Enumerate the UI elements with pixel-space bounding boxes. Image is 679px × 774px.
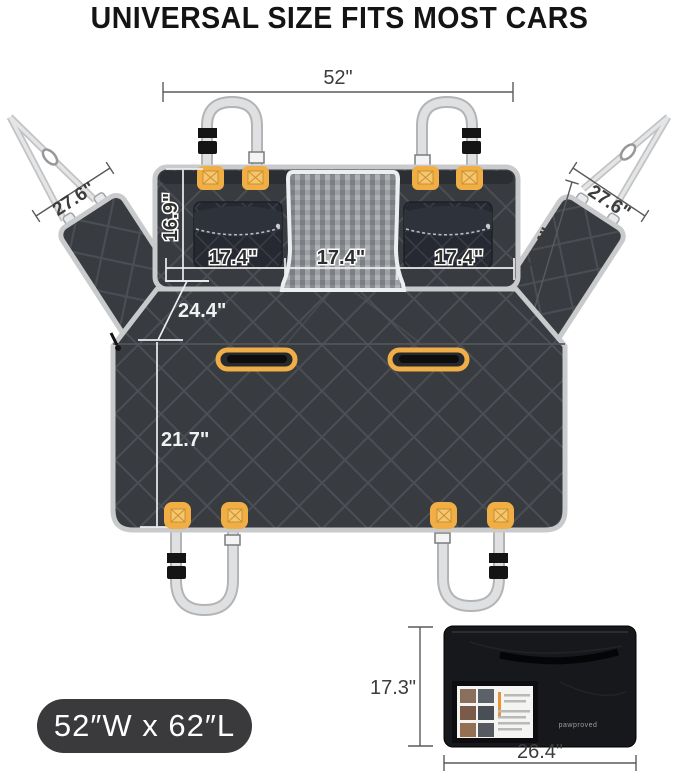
product-dimension-diagram: UNIVERSAL SIZE FITS MOST CARS 52" [0,0,679,774]
size-badge: 52″W x 62″L [37,699,252,753]
zipper-pull-icon [276,224,280,228]
strap-adjuster-icon [415,155,430,166]
dim-top-width: 52" [163,67,513,102]
packed-bag: pawproved [444,626,636,747]
bag-brand-logo: pawproved [559,722,598,729]
buckle-icon [167,553,186,563]
headrest-strap-left [198,102,264,172]
dim-pocket-left-label: 17.4" [209,247,257,269]
strap-adjuster-icon [249,152,264,163]
strap-adjuster-icon [225,535,240,545]
dim-mesh-label: 17.4" [317,247,365,269]
bottom-strap-right [435,522,508,606]
headrest-strap-right [415,102,481,172]
dim-bag-width-label: 26.4" [517,741,563,763]
dim-bench-upper-depth-label: 24.4" [178,300,226,322]
dim-bench-depth-label: 21.7" [161,429,209,451]
bench-body [111,289,565,530]
dim-backrest-height-label: 16.9" [160,193,182,241]
zipper-pull-icon [486,224,490,228]
seat-belt-slot-right [390,350,467,369]
dim-top-width-label: 52" [323,67,352,89]
strap-adjuster-icon [435,533,450,543]
mesh-window [282,172,404,290]
strap-ring-left [40,147,59,167]
seat-cover-illustration: 52" 27.6" 27 [0,0,679,774]
seat-belt-slot-left [218,350,295,369]
dim-pocket-right-label: 17.4" [435,247,483,269]
buckle-icon [489,553,508,563]
dim-bag-height-label: 17.3" [370,677,416,699]
size-badge-label: 52″W x 62″L [54,708,235,744]
buckle-icon [198,128,217,138]
dim-bag-height: 17.3" [370,627,433,746]
strap-ring-right [618,142,637,162]
buckle-icon [462,128,481,138]
instruction-card [452,681,538,743]
bottom-strap-left [167,522,240,610]
